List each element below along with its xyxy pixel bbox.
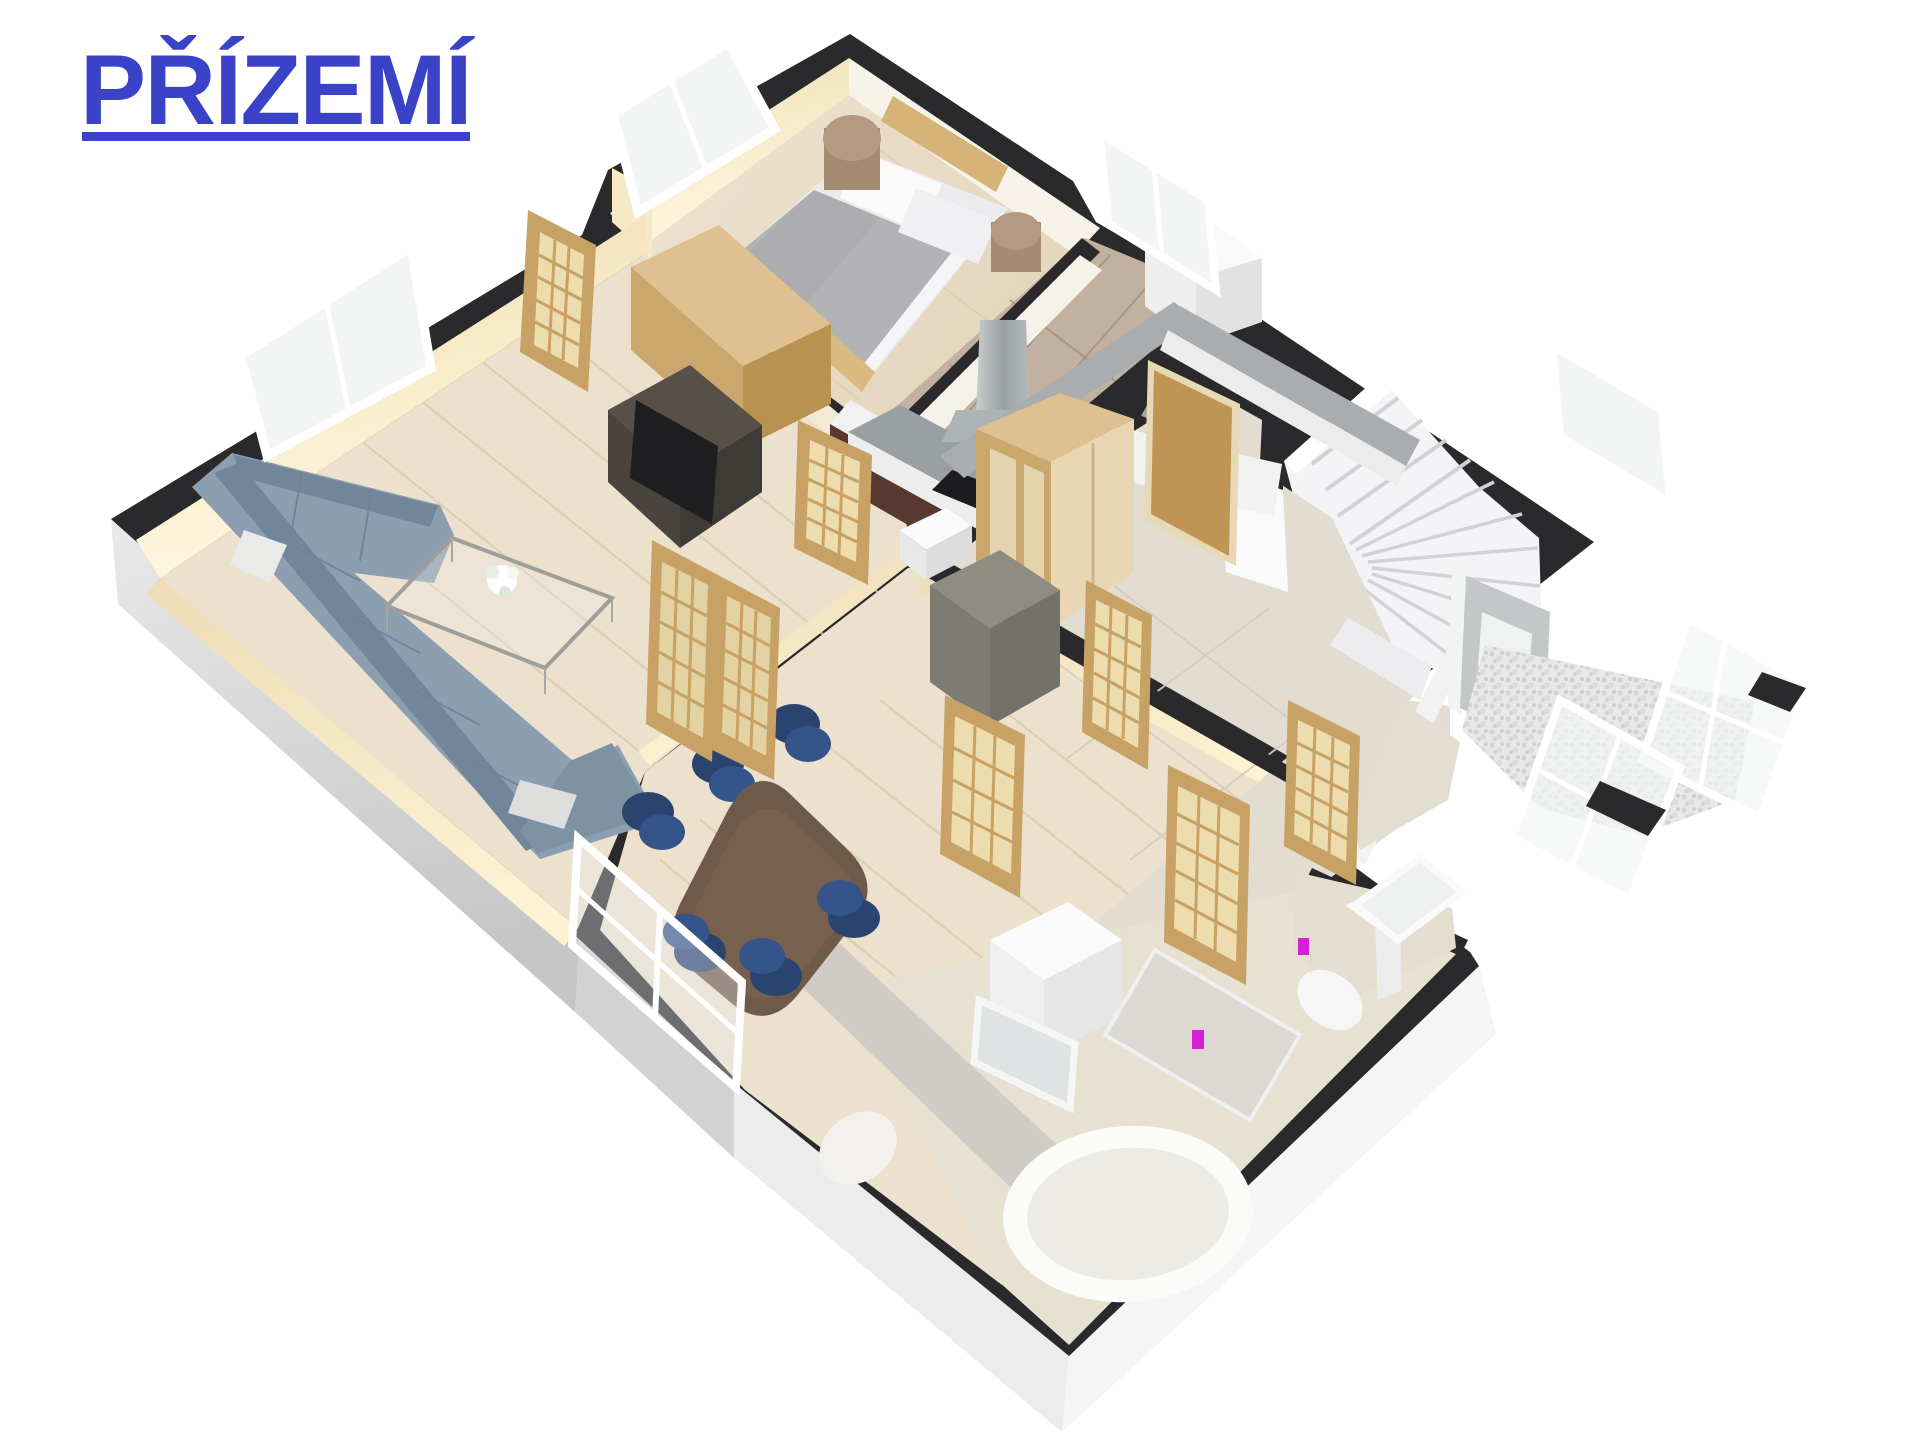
svg-text:PŘÍZEMÍ: PŘÍZEMÍ [80, 34, 475, 145]
